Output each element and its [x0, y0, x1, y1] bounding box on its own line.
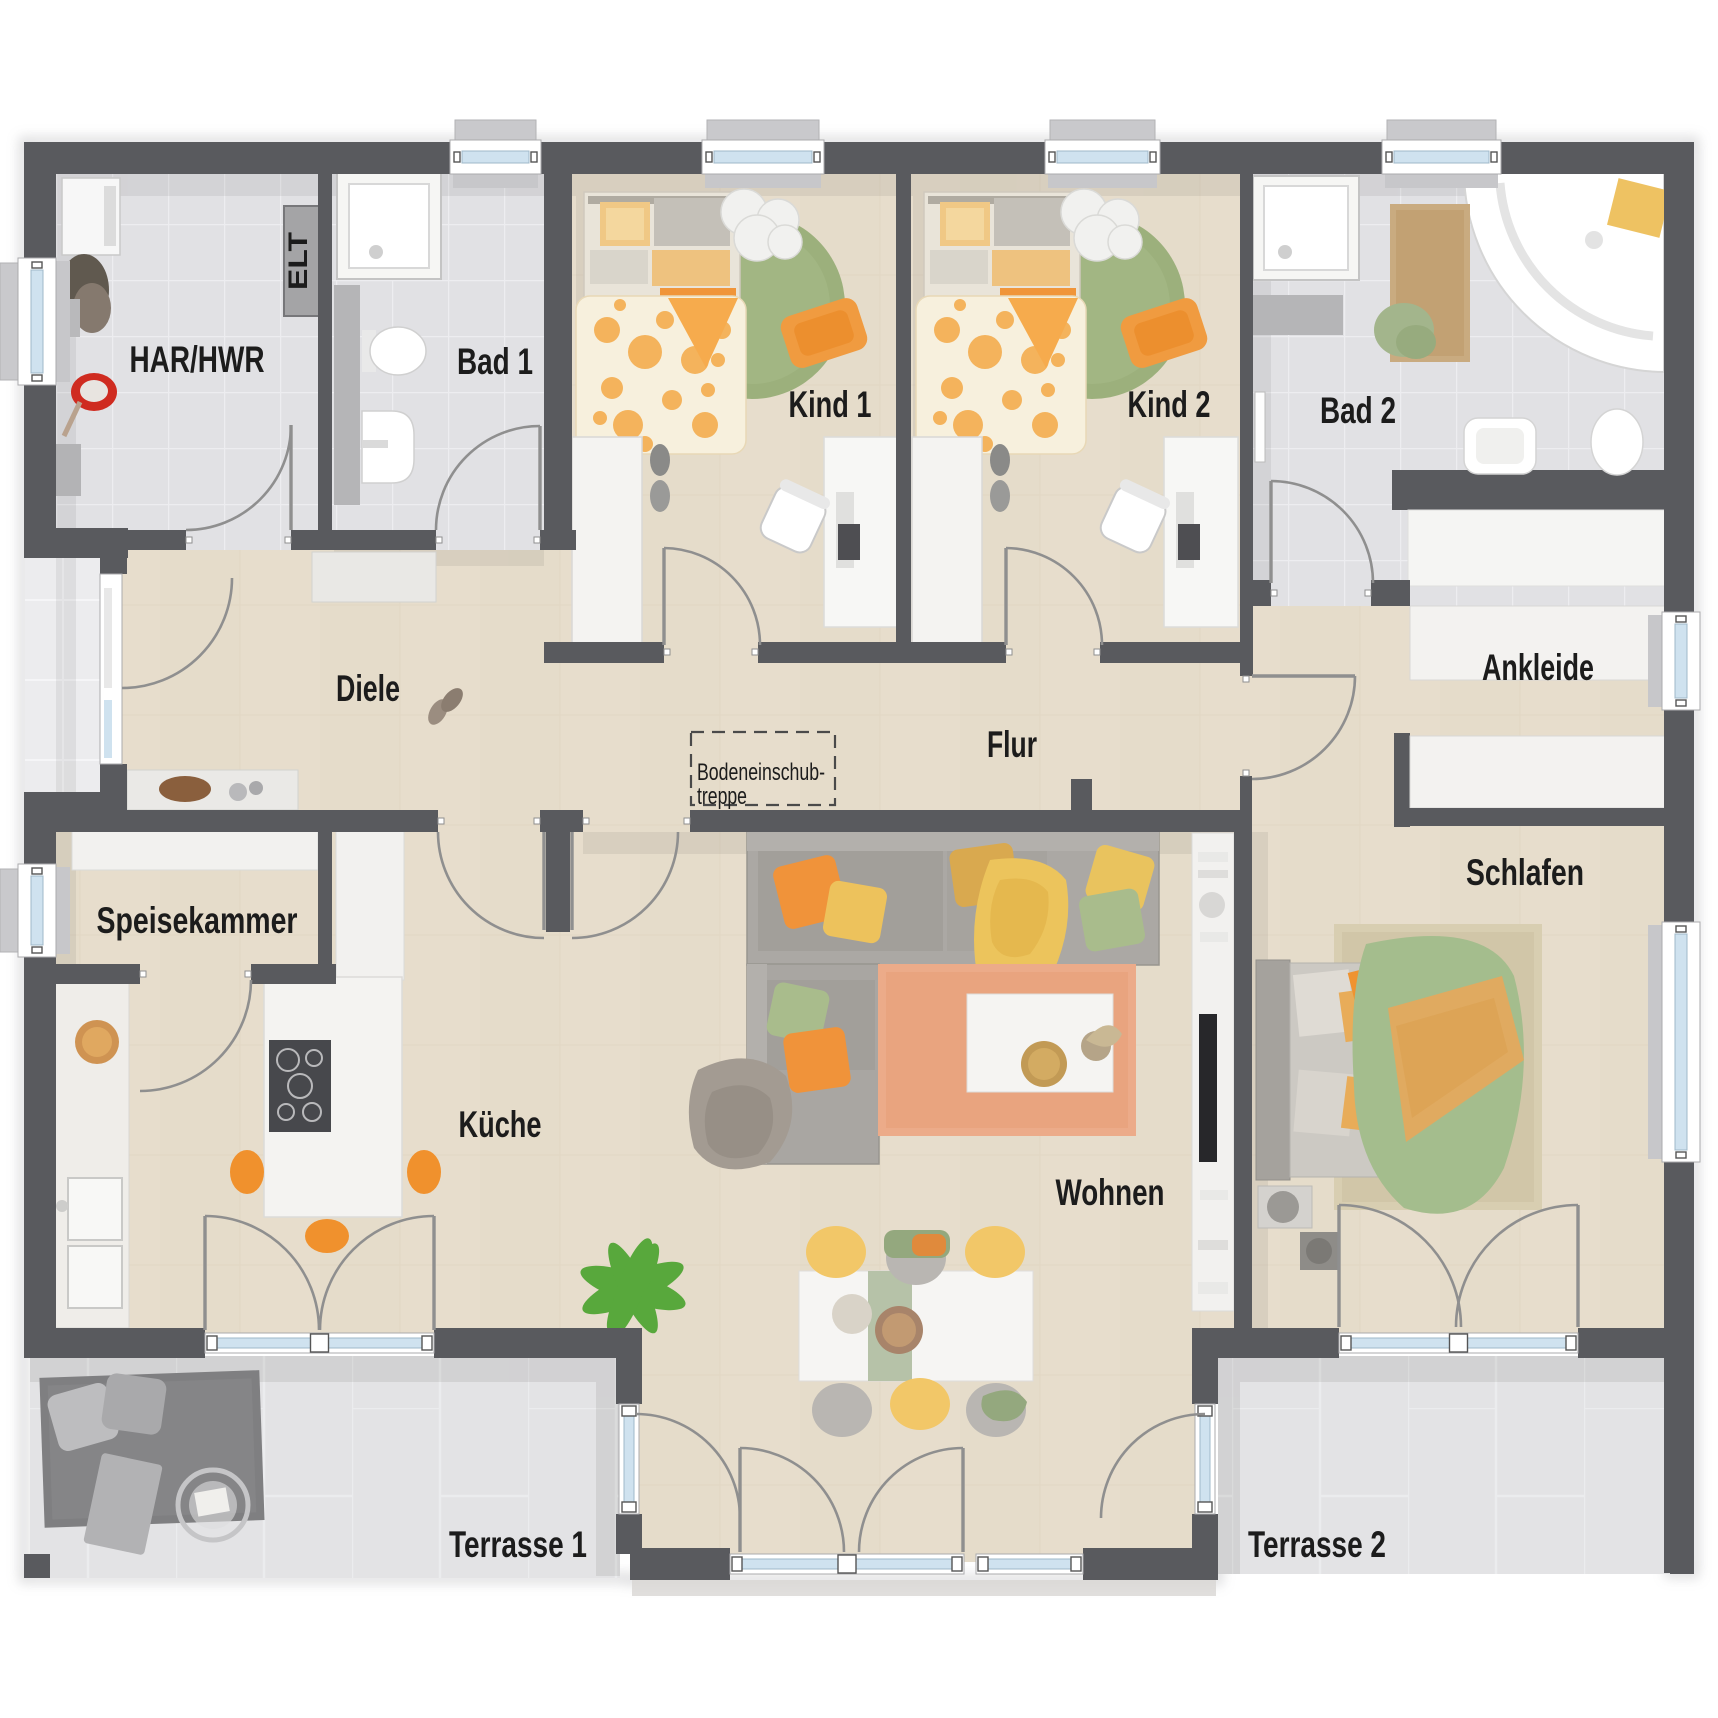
svg-text:Terrasse 2: Terrasse 2: [1248, 1524, 1386, 1565]
svg-text:Terrasse 1: Terrasse 1: [449, 1524, 587, 1565]
svg-text:Flur: Flur: [987, 724, 1037, 765]
svg-text:Schlafen: Schlafen: [1466, 852, 1584, 893]
svg-text:treppe: treppe: [697, 783, 747, 810]
svg-text:Speisekammer: Speisekammer: [97, 900, 298, 941]
svg-text:Küche: Küche: [459, 1104, 542, 1145]
svg-text:HAR/HWR: HAR/HWR: [130, 339, 265, 380]
svg-text:Diele: Diele: [336, 668, 400, 709]
svg-text:Bodeneinschub-: Bodeneinschub-: [697, 759, 825, 786]
svg-text:Wohnen: Wohnen: [1056, 1172, 1165, 1213]
svg-text:Ankleide: Ankleide: [1482, 647, 1594, 688]
svg-text:Bad 1: Bad 1: [457, 341, 533, 382]
svg-text:Kind 2: Kind 2: [1128, 384, 1211, 425]
svg-text:Kind 1: Kind 1: [789, 384, 872, 425]
svg-text:Bad 2: Bad 2: [1320, 390, 1396, 431]
svg-text:ELT: ELT: [283, 231, 313, 290]
